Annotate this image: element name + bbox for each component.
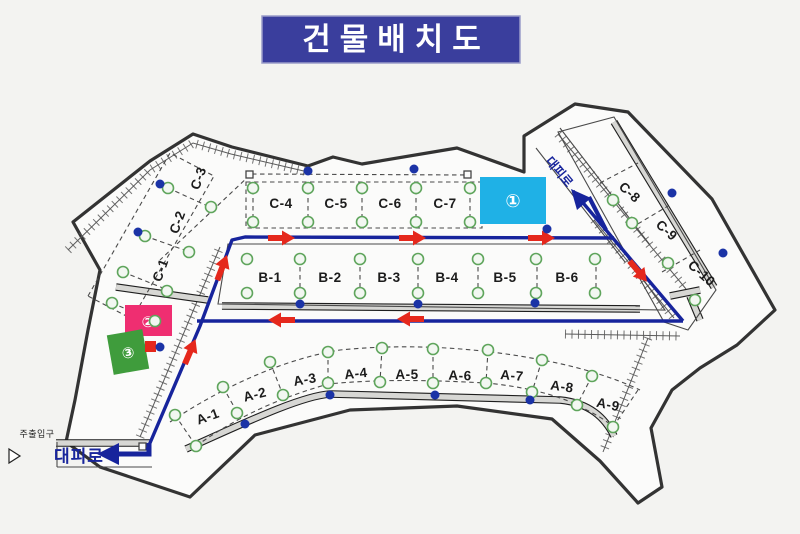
survey-square	[246, 171, 253, 178]
label-b6: B-6	[555, 270, 578, 285]
main-entrance-label: 주출입구	[19, 428, 54, 439]
label-a8: A-8	[550, 377, 575, 395]
label-b1: B-1	[258, 270, 281, 285]
label-c6: C-6	[378, 196, 401, 211]
red-square-marker	[145, 341, 156, 352]
area-1-number: ①	[505, 191, 520, 211]
title-banner: 건물배치도	[262, 16, 520, 63]
label-a5: A-5	[395, 367, 418, 382]
label-a6: A-6	[448, 368, 472, 384]
label-b3: B-3	[377, 270, 400, 285]
label-b2: B-2	[318, 270, 341, 285]
evac-route-label-bottom: 대피로	[54, 447, 104, 466]
site-plan-screenshot: ① ② ③	[0, 0, 800, 534]
page-title: 건물배치도	[302, 22, 490, 57]
label-a7: A-7	[500, 367, 524, 384]
survey-square	[464, 171, 471, 178]
label-a4: A-4	[344, 365, 369, 382]
label-c4: C-4	[269, 196, 292, 211]
label-b4: B-4	[435, 270, 458, 285]
survey-square	[139, 443, 146, 450]
site-map: ① ② ③	[0, 0, 800, 534]
label-b5: B-5	[493, 270, 516, 285]
label-c5: C-5	[324, 196, 347, 211]
gate-arrow-icon	[9, 449, 20, 463]
label-c7: C-7	[433, 196, 456, 211]
